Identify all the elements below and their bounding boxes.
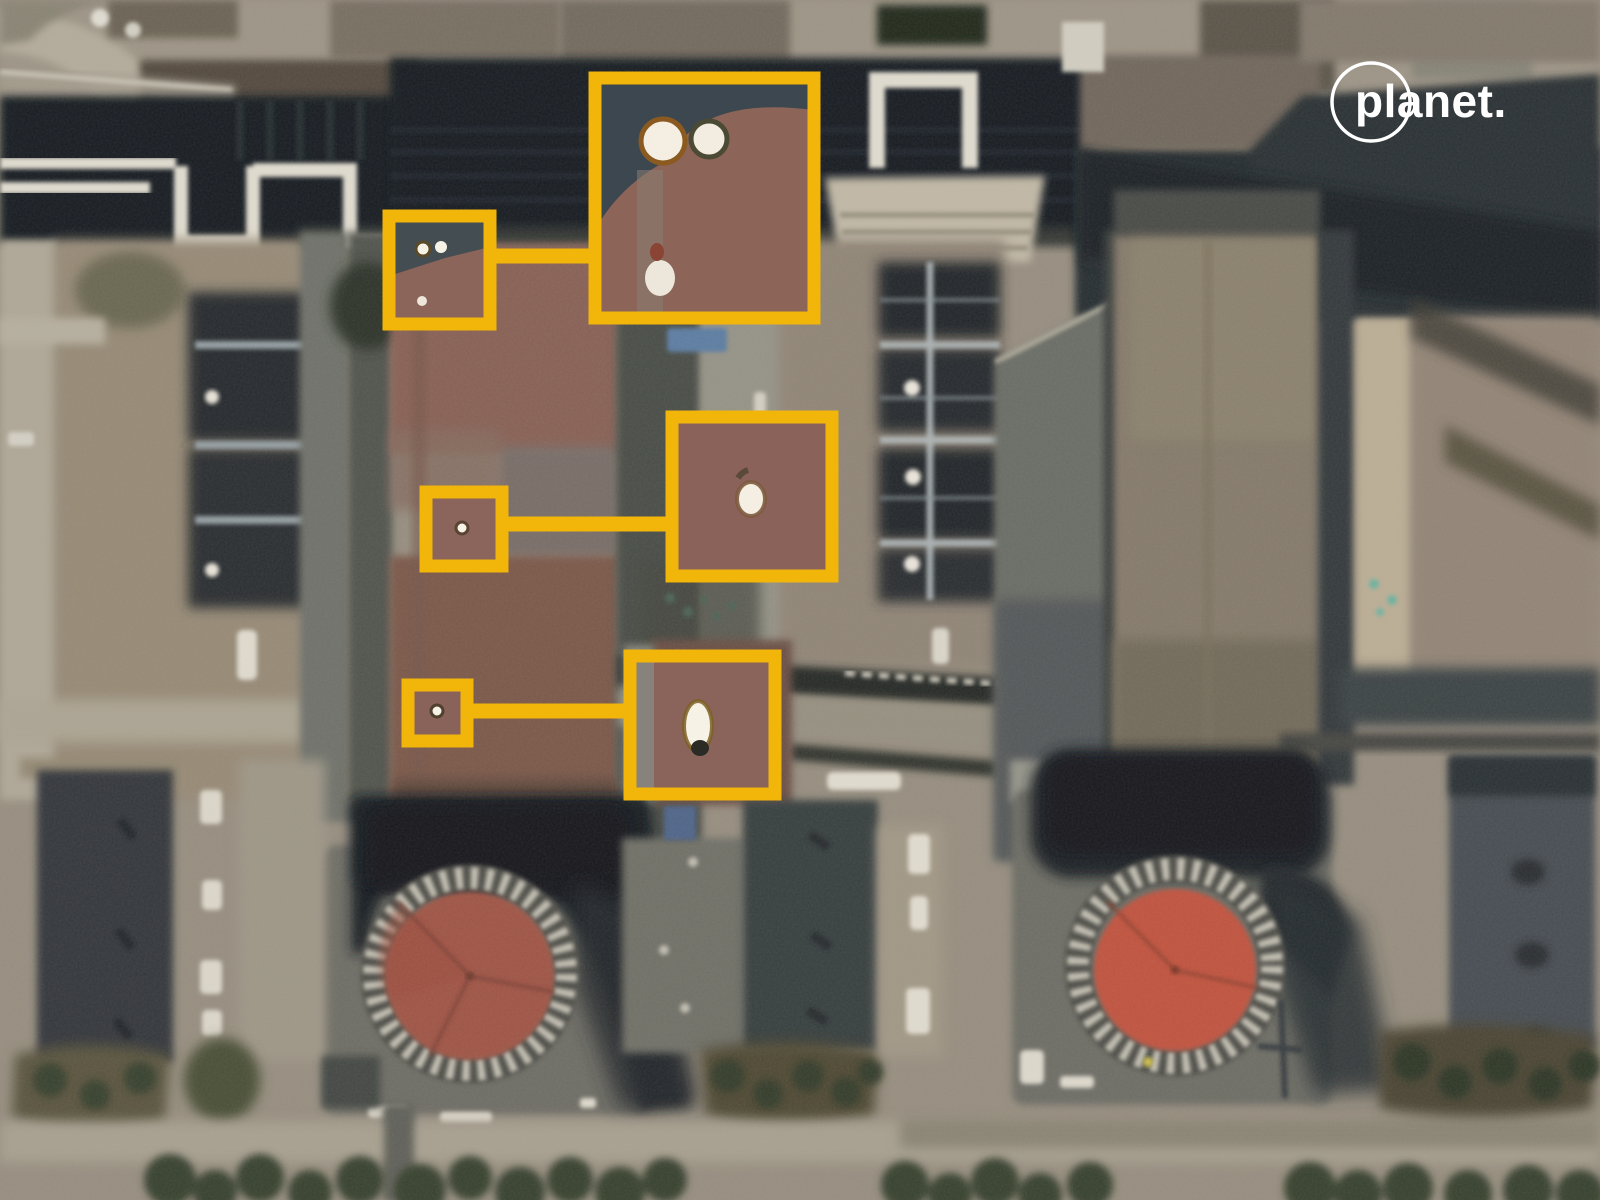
svg-text:planet.: planet.: [1355, 75, 1507, 127]
